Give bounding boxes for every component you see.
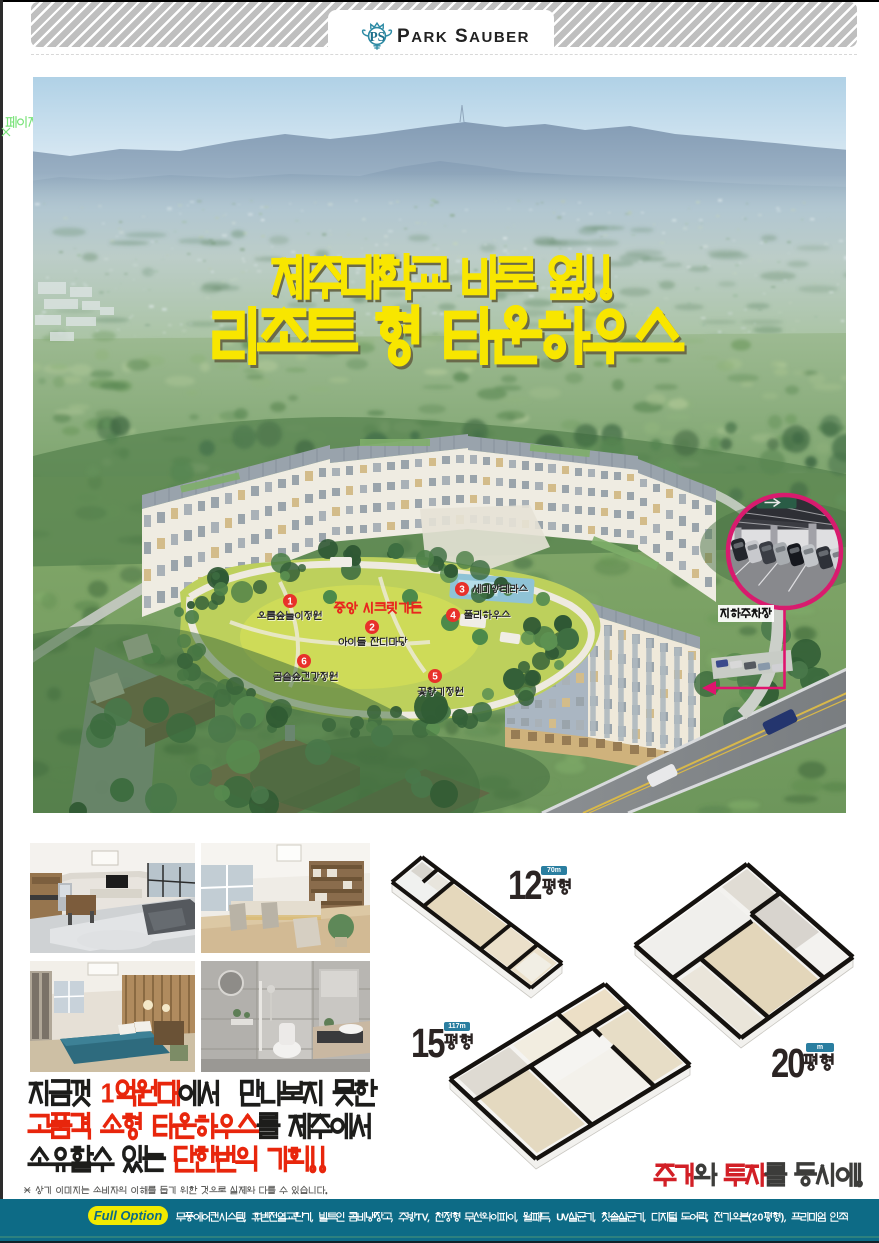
svg-text:1: 1 [287,597,293,608]
svg-text:0: 0 [758,1212,764,1223]
svg-text:V: V [562,1212,569,1223]
svg-text:3: 3 [459,585,465,596]
svg-text:4: 4 [450,611,456,622]
svg-text:): ) [781,1212,784,1223]
svg-text:V: V [422,1212,429,1223]
svg-text:2: 2 [369,623,375,634]
svg-text:PS: PS [369,29,385,44]
svg-text:1: 1 [101,1077,115,1109]
svg-text:6: 6 [301,657,307,668]
svg-text:5: 5 [432,672,438,683]
